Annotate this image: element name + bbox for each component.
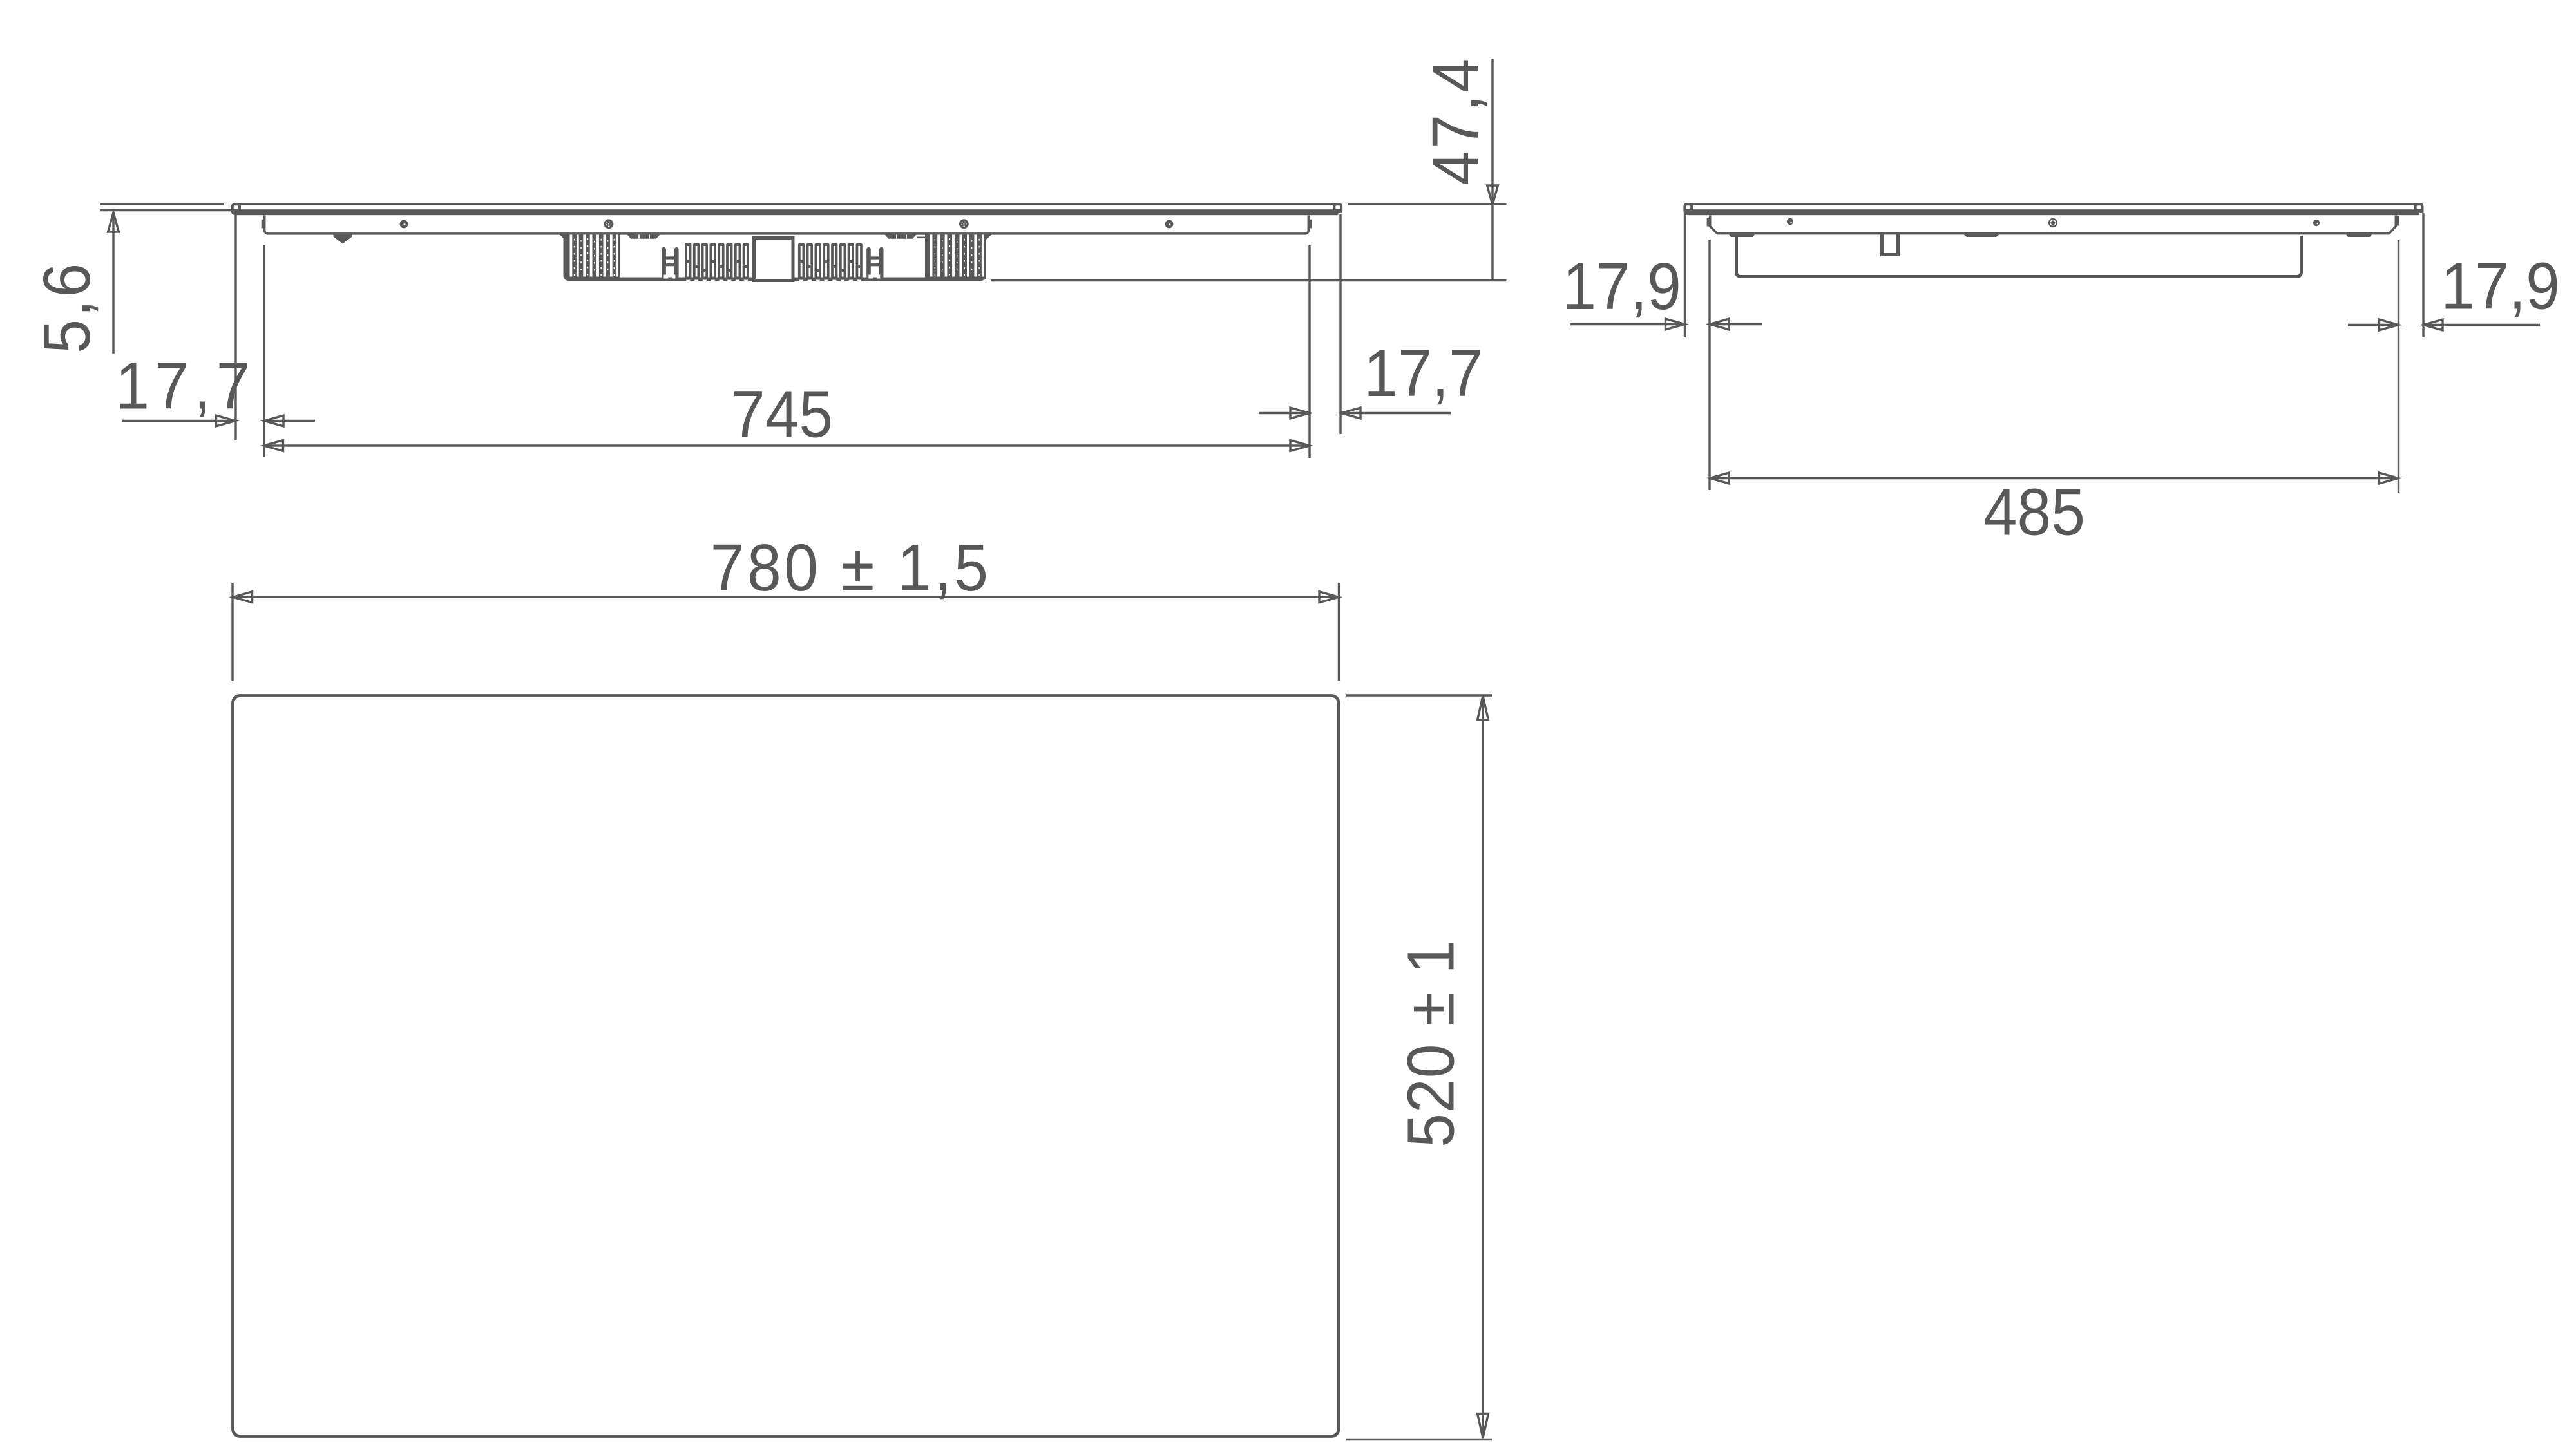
svg-text:745: 745 bbox=[731, 377, 833, 451]
svg-text:47,4: 47,4 bbox=[1418, 56, 1493, 185]
svg-text:780 ± 1,5: 780 ± 1,5 bbox=[711, 531, 991, 605]
svg-text:485: 485 bbox=[1983, 475, 2085, 549]
svg-text:5,6: 5,6 bbox=[29, 261, 104, 354]
svg-text:17,9: 17,9 bbox=[2441, 249, 2559, 323]
svg-text:17,9: 17,9 bbox=[1562, 249, 1681, 323]
svg-text:17,7: 17,7 bbox=[115, 348, 256, 423]
svg-text:520 ± 1: 520 ± 1 bbox=[1393, 940, 1468, 1147]
svg-text:17,7: 17,7 bbox=[1364, 335, 1482, 410]
